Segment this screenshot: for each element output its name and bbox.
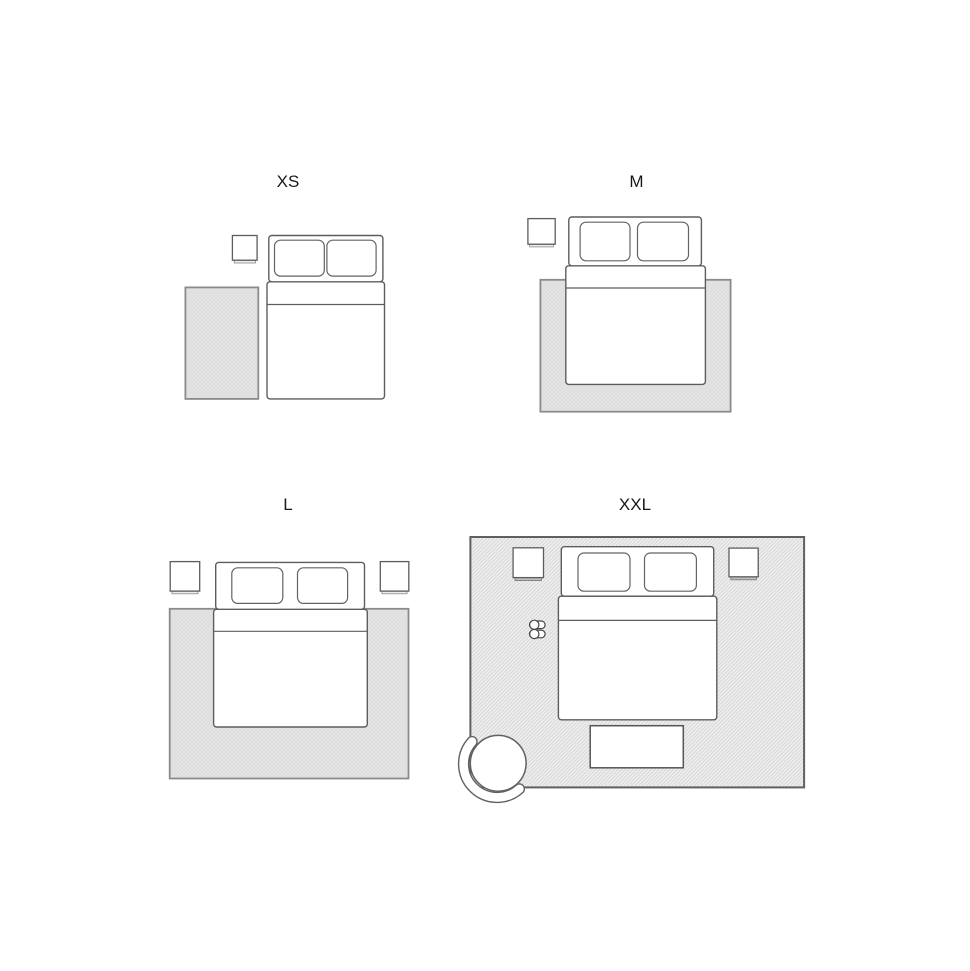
svg-text:XXL: XXL	[619, 495, 651, 514]
svg-text:XS: XS	[277, 172, 300, 191]
svg-text:M: M	[629, 172, 643, 191]
svg-text:L: L	[283, 495, 292, 514]
